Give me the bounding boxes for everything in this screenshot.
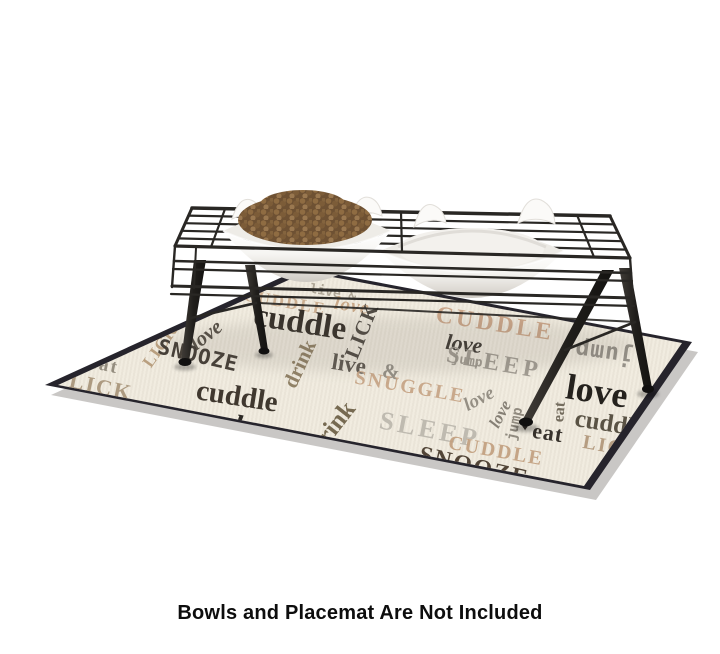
kibble [238,190,372,245]
right-bowl-right-ear [518,199,555,224]
caption: Bowls and Placemat Are Not Included [0,602,720,625]
right-bowl-left-ear [414,204,446,227]
product-photo: CUDDLElive &loveCUDDLElovejumpLICKcuddle… [0,0,720,654]
feeder-stand-and-bowls-graphic [0,0,720,654]
